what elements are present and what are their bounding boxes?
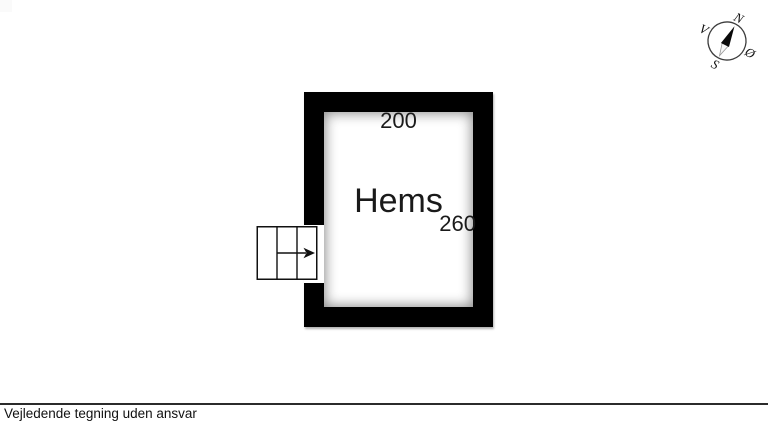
footer-divider: [0, 403, 768, 405]
dimension-right: 260: [324, 212, 476, 236]
scan-artifact: [0, 0, 12, 12]
stairs-icon: [256, 224, 320, 284]
dimension-top: 200: [324, 109, 473, 133]
compass-south-label: S: [709, 56, 722, 73]
floor-plan-page: 200 Hems 260 N S V Ø Vejledende tegning …: [0, 0, 768, 422]
compass-icon: N S V Ø: [693, 5, 763, 75]
footer-disclaimer: Vejledende tegning uden ansvar: [4, 406, 197, 422]
